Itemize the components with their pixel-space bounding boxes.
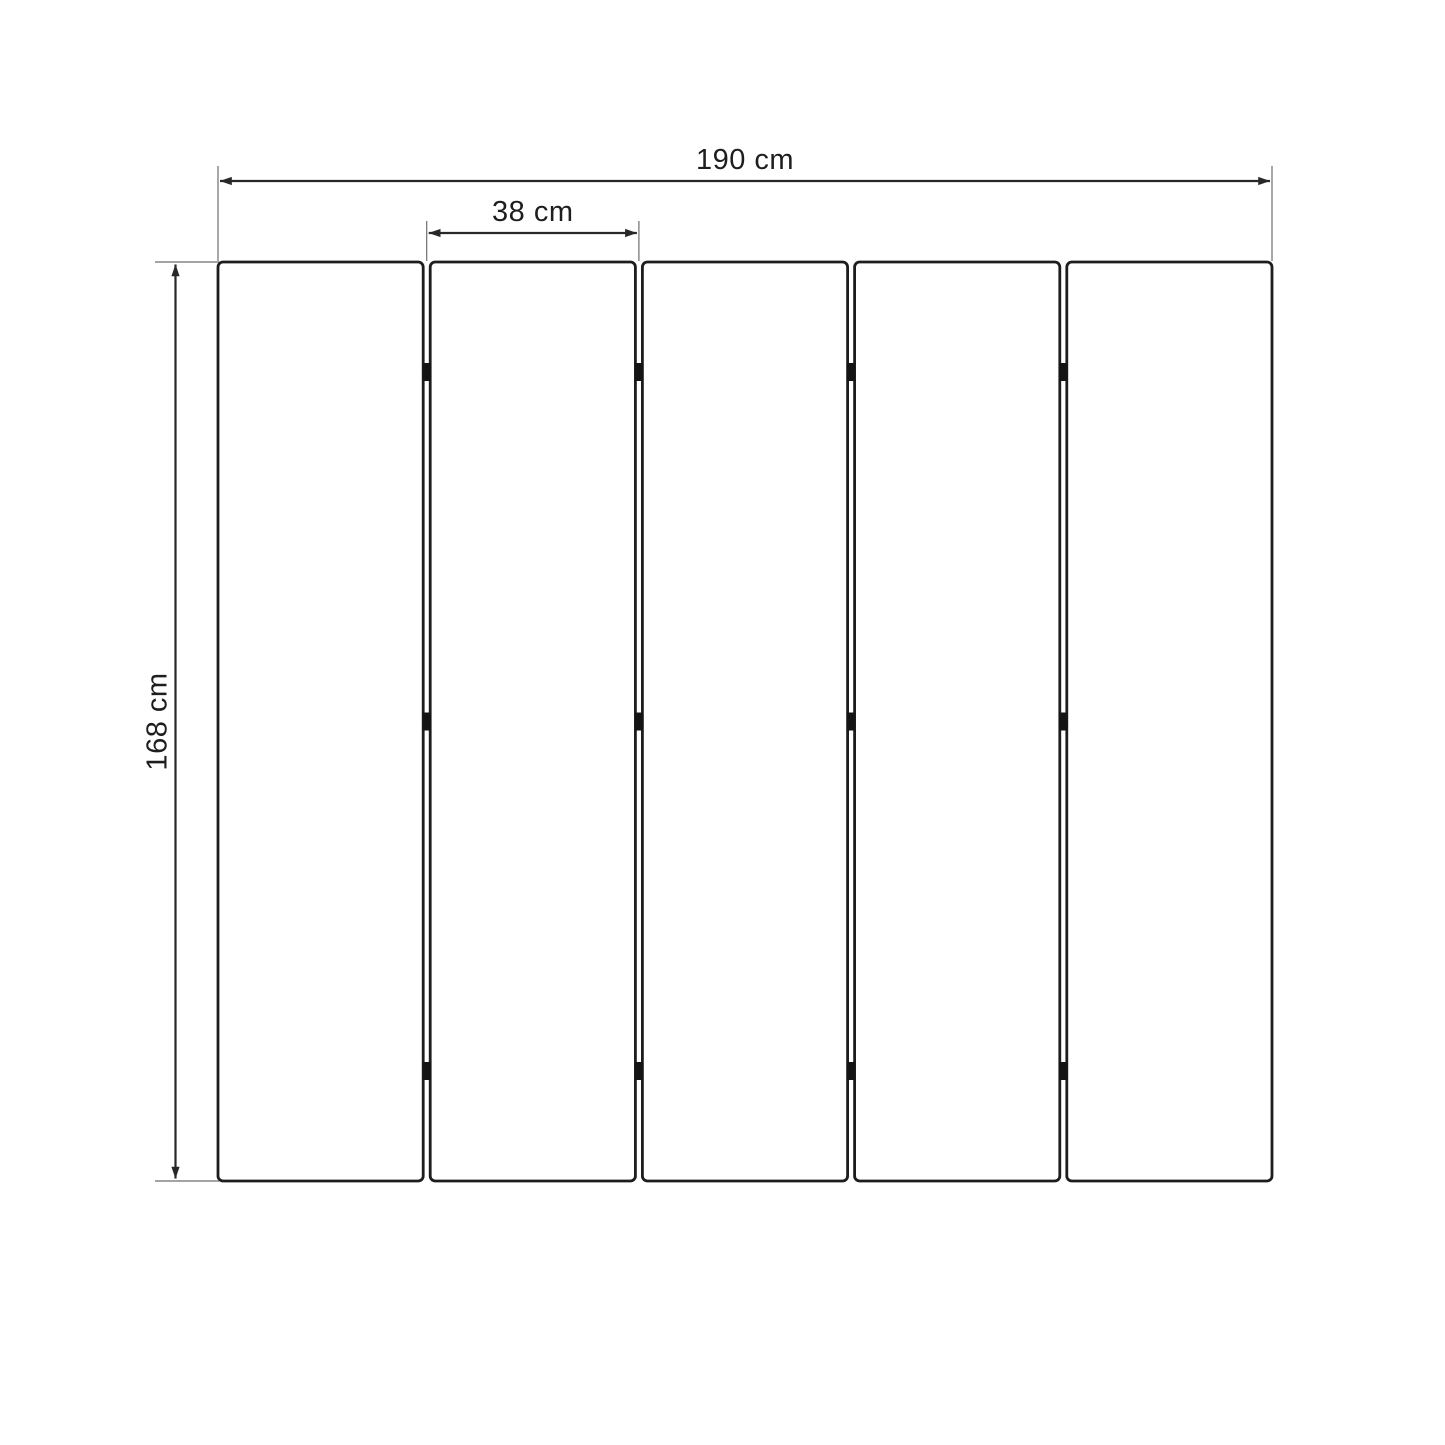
hinge [1059, 713, 1067, 731]
hinge [423, 1062, 431, 1080]
panels [218, 262, 1272, 1181]
hinge [847, 713, 855, 731]
dimension-panel-width: 38 cm [427, 196, 639, 261]
hinge [423, 713, 431, 731]
hinge [635, 363, 643, 381]
height-label: 168 cm [142, 672, 174, 770]
dimension-diagram: 190 cm 38 cm 168 cm [0, 0, 1445, 1445]
dimension-diagram-page: 190 cm 38 cm 168 cm [0, 0, 1445, 1445]
hinge [1059, 363, 1067, 381]
dimension-height: 168 cm [142, 262, 220, 1181]
dimension-total-width: 190 cm [218, 144, 1272, 261]
hinge [847, 363, 855, 381]
hinge [423, 363, 431, 381]
panel-1 [218, 262, 423, 1181]
hinge [1059, 1062, 1067, 1080]
hinge [847, 1062, 855, 1080]
hinge [635, 1062, 643, 1080]
panel-width-label: 38 cm [492, 196, 573, 228]
hinge [635, 713, 643, 731]
panel-2 [430, 262, 635, 1181]
total-width-label: 190 cm [696, 144, 794, 176]
panel-3 [642, 262, 847, 1181]
panel-4 [855, 262, 1060, 1181]
panel-5 [1067, 262, 1272, 1181]
